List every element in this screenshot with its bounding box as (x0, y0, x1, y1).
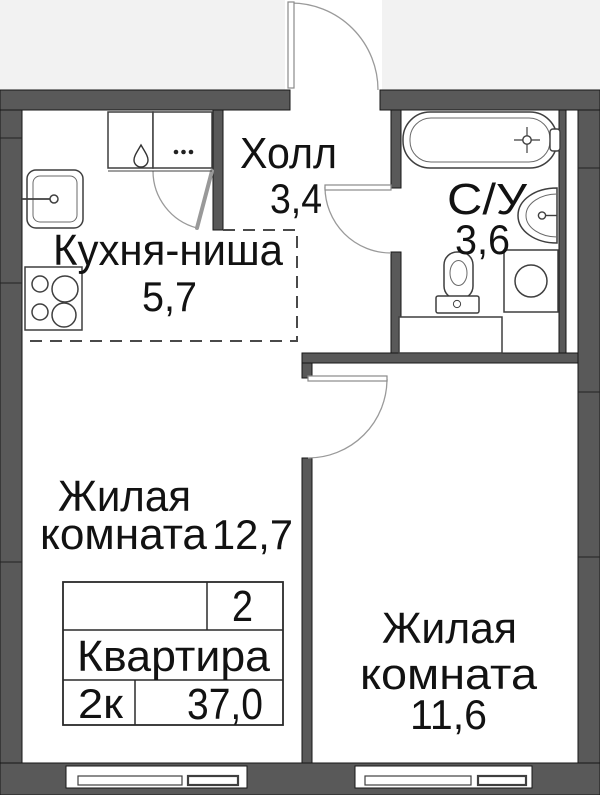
living-left-label-line2: комната (40, 510, 208, 559)
info-table-top-value: 2 (232, 582, 253, 631)
kitchen-sink (22, 170, 83, 228)
hall-area: 3,4 (270, 175, 322, 222)
info-table-area: 37,0 (187, 680, 263, 729)
kitchen-area: 5,7 (142, 273, 197, 320)
living-right-area: 11,6 (410, 691, 487, 738)
living-right-label-line1: Жилая (382, 604, 517, 653)
bathtub (403, 112, 560, 168)
cooktop (25, 267, 82, 330)
window-sash (478, 776, 526, 785)
window-left (66, 766, 247, 788)
entrance-door-leaf (288, 2, 294, 88)
wall-kitchen (213, 110, 223, 230)
wall-top-left (0, 90, 290, 110)
bathroom-cabinet (399, 317, 502, 353)
knobs-dots-icon (174, 150, 194, 155)
wall-top-right (380, 90, 600, 110)
floor-plan: Холл 3,4 С/У 3,6 Кухня-ниша 5,7 Жилая ко… (0, 0, 600, 795)
window-frame (365, 776, 471, 785)
basin-tap-icon (538, 212, 545, 219)
kitchen-label: Кухня-ниша (53, 226, 283, 275)
living-left-area: 12,7 (212, 511, 293, 558)
window-frame (78, 776, 182, 785)
bathroom-door-leaf (325, 185, 391, 190)
wall-hall-rooms (302, 353, 578, 363)
wall-right (578, 110, 600, 795)
bathroom-area: 3,6 (455, 216, 510, 263)
info-table: 2 Квартира 2к 37,0 (63, 582, 283, 729)
kitchen-counter (108, 112, 212, 171)
window-right (355, 766, 532, 788)
washing-machine (504, 250, 558, 312)
wall-bathroom-left-upper (391, 110, 401, 188)
window-sash (188, 776, 238, 785)
hall-label: Холл (240, 129, 337, 178)
wall-room-divider (302, 458, 312, 763)
tub-drain-icon (523, 136, 531, 144)
info-table-label: Квартира (77, 632, 271, 681)
living-room-door-leaf (308, 376, 387, 381)
floor-plan-drawing: Холл 3,4 С/У 3,6 Кухня-ниша 5,7 Жилая ко… (0, 0, 600, 795)
tub-tap-icon (550, 129, 560, 151)
wall-left (0, 110, 22, 763)
info-table-rooms: 2к (78, 680, 124, 727)
